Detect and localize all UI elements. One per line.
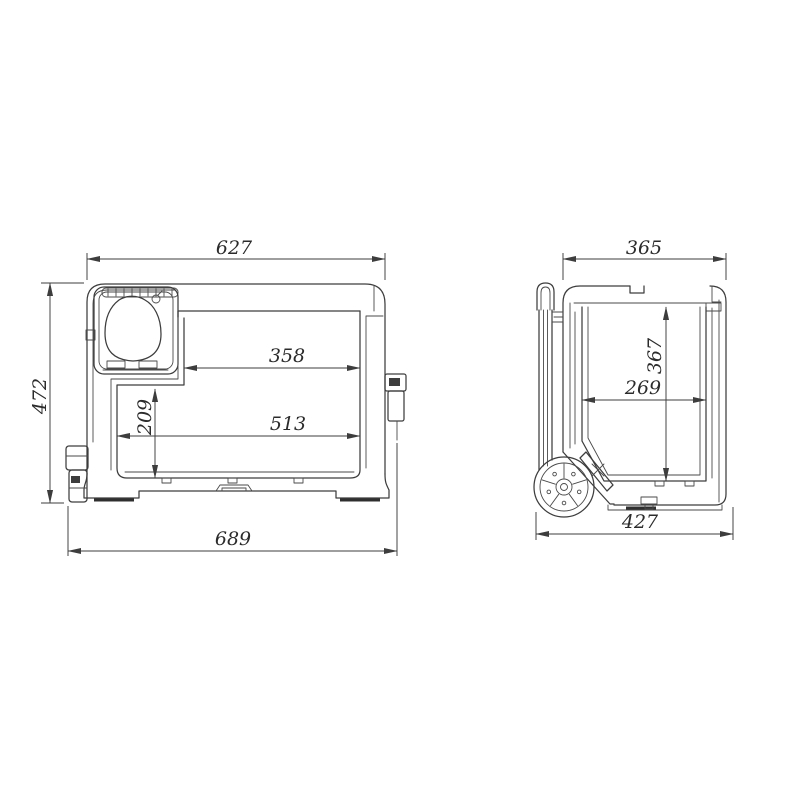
dim-label-front-height: 472 xyxy=(29,378,51,415)
dim-label-front-inner-upper: 358 xyxy=(269,345,305,367)
lid-notch xyxy=(630,286,644,293)
dim-label-front-width-overall: 689 xyxy=(215,528,251,550)
compressor-foot-left xyxy=(107,361,125,368)
wheel-bolt-2 xyxy=(553,472,557,476)
dimension-front-inner-height: 209 xyxy=(134,389,156,478)
dimension-front-width-top: 627 xyxy=(87,237,385,280)
dim-label-front-width-top: 627 xyxy=(216,237,253,259)
axle-strut xyxy=(580,452,613,491)
dim-label-side-depth-overall: 427 xyxy=(621,511,659,533)
side-liner-tab-2 xyxy=(685,481,694,486)
right-latch-lower xyxy=(388,391,404,421)
side-inner-right-wall xyxy=(712,300,719,502)
wheel-bolt-4 xyxy=(562,501,566,505)
side-base-flange xyxy=(608,505,722,510)
side-liner-tab-1 xyxy=(655,481,664,486)
side-top-latch xyxy=(712,287,721,302)
liner-tab-1 xyxy=(162,478,171,483)
compressor xyxy=(105,296,161,361)
telescopic-handle xyxy=(537,283,563,470)
side-drain-upper xyxy=(641,497,657,504)
inner-right-wall xyxy=(366,286,383,468)
dim-label-side-inner-depth: 269 xyxy=(624,377,661,399)
cooler-dimension-drawing: 627 472 358 209 513 689 xyxy=(0,0,800,800)
left-latch-upper xyxy=(66,446,88,470)
dim-label-front-inner-lower: 513 xyxy=(270,413,306,435)
liner-tab-3 xyxy=(294,478,303,483)
wheel xyxy=(534,457,594,517)
dim-label-side-depth-top: 365 xyxy=(626,237,662,259)
right-latch xyxy=(385,374,406,440)
right-latch-pin xyxy=(389,378,400,386)
front-view: 627 472 358 209 513 689 xyxy=(29,237,406,556)
left-latch-pin xyxy=(71,476,80,483)
inner-liner xyxy=(117,311,360,478)
lid-seam xyxy=(178,311,360,317)
wheel-bolt-3 xyxy=(547,490,551,494)
dimension-side-depth-top: 365 xyxy=(563,237,726,280)
dimension-side-depth-overall: 427 xyxy=(536,507,733,540)
wheel-axle xyxy=(561,484,568,491)
drawing-canvas: 627 472 358 209 513 689 xyxy=(0,0,800,800)
wheel-hub xyxy=(556,479,572,495)
dimension-front-inner-upper: 358 xyxy=(184,345,360,368)
handle-shaft-inner xyxy=(544,310,548,466)
compressor-foot-right xyxy=(139,361,157,368)
dimension-side-inner-depth: 269 xyxy=(582,377,706,400)
wheel-bolt-5 xyxy=(577,490,581,494)
side-view: 365 367 269 427 xyxy=(534,237,733,540)
side-inner-left-wall xyxy=(570,303,575,448)
left-latch xyxy=(66,446,88,502)
side-body-outline-left xyxy=(563,286,630,452)
handle-cap-inner xyxy=(541,287,550,310)
compressor-compartment xyxy=(94,287,178,374)
dim-label-side-inner-height: 367 xyxy=(644,337,666,374)
dim-label-front-inner-height: 209 xyxy=(134,399,156,436)
liner-tab-2 xyxy=(228,478,237,483)
inner-liner-offset xyxy=(111,318,178,470)
handle-shaft xyxy=(539,310,552,470)
wheel-bolt-1 xyxy=(572,472,576,476)
compartment-inner xyxy=(99,292,173,369)
front-drain-bump xyxy=(216,485,252,491)
